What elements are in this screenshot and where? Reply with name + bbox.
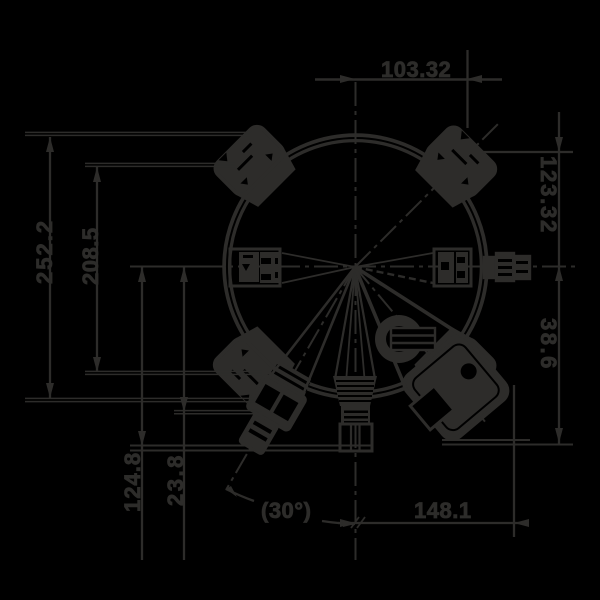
svg-text:148.1: 148.1 xyxy=(414,498,472,523)
svg-text:38.6: 38.6 xyxy=(536,318,561,371)
svg-text:208.5: 208.5 xyxy=(78,227,103,285)
svg-text:123.32: 123.32 xyxy=(536,156,561,234)
svg-text:124.8: 124.8 xyxy=(120,452,145,512)
svg-text:23.8: 23.8 xyxy=(163,453,188,506)
svg-text:252.2: 252.2 xyxy=(32,219,57,284)
svg-text:103.32: 103.32 xyxy=(381,57,451,82)
svg-text:(30°): (30°) xyxy=(261,498,311,523)
